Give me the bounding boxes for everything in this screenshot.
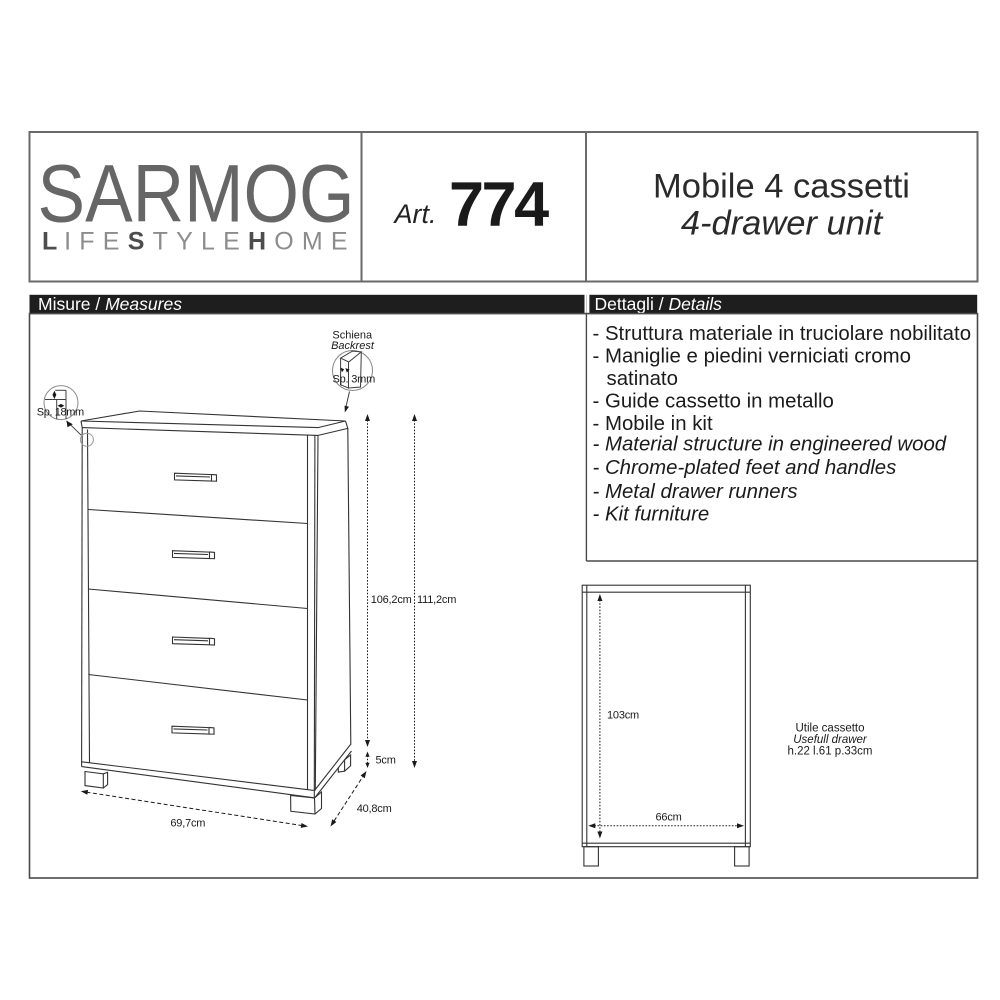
svg-text:SARMOG: SARMOG: [38, 149, 355, 240]
svg-text:H: H: [248, 228, 266, 256]
svg-text:L: L: [201, 228, 215, 256]
svg-text:- Metal drawer runners: - Metal drawer runners: [593, 481, 798, 503]
svg-text:- Mobile in kit: - Mobile in kit: [593, 413, 713, 435]
svg-text:69,7cm: 69,7cm: [170, 817, 205, 829]
svg-text:- Maniglie e piedini verniciat: - Maniglie e piedini verniciati cromo: [593, 345, 911, 367]
svg-text:5cm: 5cm: [376, 755, 396, 767]
svg-text:Sp. 18mm: Sp. 18mm: [37, 407, 84, 419]
svg-text:- Struttura materiale in truci: - Struttura materiale in truciolare nobi…: [593, 323, 972, 345]
svg-text:Mobile 4 cassetti: Mobile 4 cassetti: [653, 168, 910, 206]
svg-text:Art.: Art.: [393, 199, 437, 229]
svg-text:M: M: [302, 228, 323, 256]
svg-text:- Kit furniture: - Kit furniture: [593, 504, 710, 526]
svg-text:106,2cm: 106,2cm: [371, 594, 412, 606]
svg-text:- Chrome-plated feet and handl: - Chrome-plated feet and handles: [593, 457, 897, 479]
svg-text:Misure / Measures: Misure / Measures: [38, 294, 182, 314]
svg-text:I: I: [64, 228, 71, 256]
svg-text:774: 774: [449, 170, 549, 240]
svg-text:- Guide cassetto in metallo: - Guide cassetto in metallo: [593, 391, 834, 413]
svg-text:Backrest: Backrest: [331, 340, 375, 352]
svg-text:Utile cassetto: Utile cassetto: [795, 723, 864, 735]
svg-text:Dettagli / Details: Dettagli / Details: [595, 294, 723, 314]
svg-text:F: F: [79, 228, 94, 256]
svg-text:Y: Y: [176, 228, 193, 256]
svg-text:h.22 l.61 p.33cm: h.22 l.61 p.33cm: [787, 746, 872, 758]
svg-text:- Material structure in engine: - Material structure in engineered wood: [593, 433, 947, 455]
svg-text:E: E: [223, 228, 240, 256]
svg-text:E: E: [331, 228, 348, 256]
svg-text:Usefull drawer: Usefull drawer: [793, 734, 868, 746]
svg-text:111,2cm: 111,2cm: [417, 594, 456, 606]
svg-text:E: E: [103, 228, 120, 256]
svg-text:T: T: [153, 228, 168, 256]
svg-text:satinato: satinato: [607, 368, 678, 390]
svg-text:40,8cm: 40,8cm: [357, 803, 392, 815]
svg-text:S: S: [128, 228, 145, 256]
svg-text:4-drawer unit: 4-drawer unit: [681, 205, 884, 243]
svg-text:O: O: [274, 228, 293, 256]
svg-text:66cm: 66cm: [656, 812, 682, 824]
svg-text:103cm: 103cm: [607, 710, 639, 722]
svg-text:L: L: [42, 228, 57, 256]
svg-text:Sp. 3mm: Sp. 3mm: [333, 374, 376, 386]
